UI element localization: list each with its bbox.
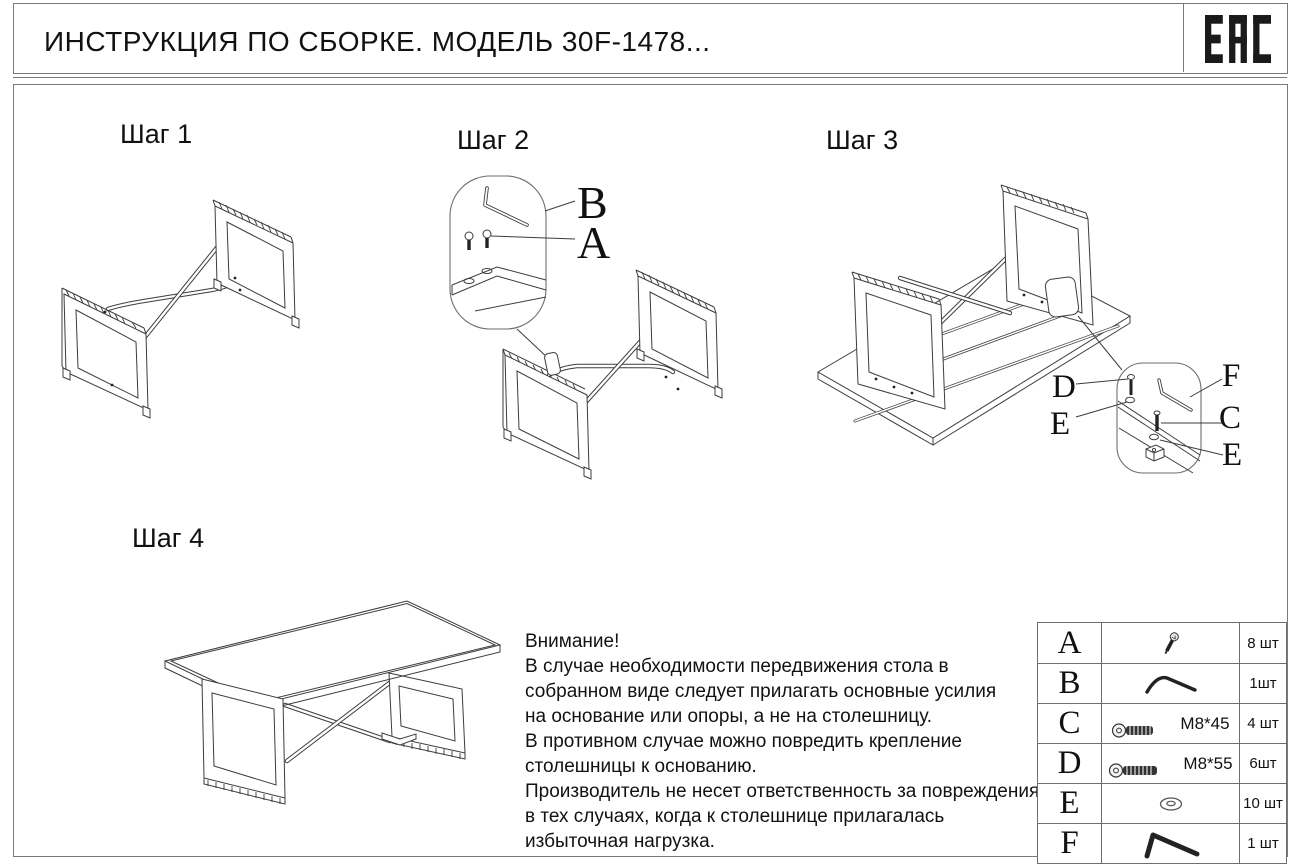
- zoom-area-marker: [1045, 276, 1080, 318]
- right-leg-frame: [636, 270, 722, 398]
- warning-line: Внимание!: [525, 629, 1040, 654]
- part-id: A: [1038, 623, 1102, 663]
- step4-drawing: [150, 593, 520, 853]
- bolt-icon: [1111, 711, 1173, 737]
- callout-f: F: [1222, 360, 1240, 393]
- part-qty: 4 шт: [1240, 704, 1286, 743]
- step3-drawing: [810, 183, 1255, 493]
- hex-key-icon: [1140, 828, 1202, 860]
- table-row: C M8*45 4 шт: [1038, 703, 1286, 743]
- part-id: F: [1038, 824, 1102, 863]
- screw-icon: [1151, 627, 1191, 659]
- left-leg-frame: [202, 679, 285, 804]
- spacer-block: [1146, 445, 1164, 461]
- detail-bubble: [450, 176, 546, 329]
- hex-key-icon: [1143, 670, 1199, 698]
- callout-leader-b: [545, 201, 575, 211]
- table-row: B 1шт: [1038, 663, 1286, 703]
- page-title: ИНСТРУКЦИЯ ПО СБОРКЕ. МОДЕЛЬ 30F-1478...: [44, 26, 711, 58]
- table-row: E 10 шт: [1038, 783, 1286, 823]
- right-leg-frame: [389, 673, 465, 759]
- part-qty: 1шт: [1240, 664, 1286, 703]
- warning-text: Внимание! В случае необходимости передви…: [525, 629, 1040, 854]
- warning-line: В противном случае можно повредить крепл…: [525, 729, 1040, 754]
- right-leg-frame: [213, 200, 299, 328]
- callout-e1: E: [1050, 408, 1070, 441]
- part-id: E: [1038, 784, 1102, 823]
- warning-line: на основание или опоры, а не на столешни…: [525, 704, 1040, 729]
- step3-label: Шаг 3: [826, 125, 898, 156]
- washer-icon: [1151, 791, 1191, 817]
- step1-drawing: [60, 196, 312, 428]
- left-leg-frame: [62, 288, 150, 418]
- callout-c: C: [1219, 402, 1241, 435]
- callout-a: A: [577, 220, 610, 266]
- header-divider: [1183, 3, 1184, 72]
- warning-line: избыточная нагрузка.: [525, 829, 1040, 854]
- callout-d: D: [1052, 371, 1076, 404]
- part-qty: 1 шт: [1240, 824, 1286, 863]
- part-qty: 8 шт: [1240, 623, 1286, 663]
- parts-table: A 8 шт B 1шт: [1037, 622, 1287, 864]
- callout-e2: E: [1222, 439, 1242, 472]
- step4-label: Шаг 4: [132, 523, 204, 554]
- part-spec: M8*45: [1180, 714, 1229, 734]
- warning-line: собранном виде следует прилагать основны…: [525, 679, 1040, 704]
- detail-bubble: [1117, 363, 1201, 473]
- part-id: B: [1038, 664, 1102, 703]
- part-id: C: [1038, 704, 1102, 743]
- warning-line: в тех случаях, когда к столешнице прилаг…: [525, 804, 1040, 829]
- step1-label: Шаг 1: [120, 119, 192, 150]
- table-row: D M8*55 6шт: [1038, 743, 1286, 783]
- warning-line: В случае необходимости передвижения стол…: [525, 654, 1040, 679]
- assembly-instruction-page: ИНСТРУКЦИЯ ПО СБОРКЕ. МОДЕЛЬ 30F-1478...…: [0, 0, 1300, 867]
- warning-line: Производитель не несет ответственность з…: [525, 779, 1040, 804]
- part-spec: M8*55: [1183, 754, 1232, 774]
- table-row: A 8 шт: [1038, 623, 1286, 663]
- part-qty: 10 шт: [1240, 784, 1286, 823]
- separator-rule: [13, 77, 1287, 78]
- part-qty: 6шт: [1240, 744, 1286, 783]
- part-id: D: [1038, 744, 1102, 783]
- step2-label: Шаг 2: [457, 125, 529, 156]
- warning-line: столешницы к основанию.: [525, 754, 1040, 779]
- bolt-icon: [1108, 751, 1176, 777]
- table-row: F 1 шт: [1038, 823, 1286, 863]
- eac-certification-mark-icon: [1205, 15, 1271, 63]
- zoom-area-marker: [544, 352, 561, 376]
- zoom-leader-line: [517, 329, 549, 359]
- step2-drawing: [445, 163, 795, 513]
